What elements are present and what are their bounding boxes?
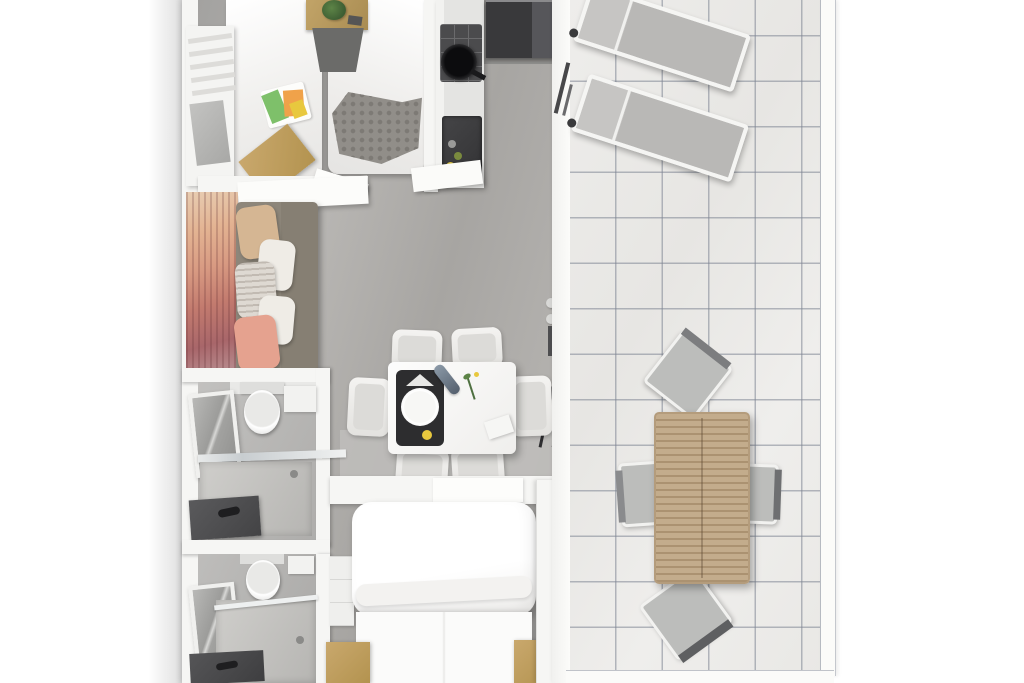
dining-chair-left	[347, 377, 392, 437]
wardrobe-shelves	[186, 26, 234, 186]
napkin-triangle	[406, 374, 434, 386]
bathroom-bottom-shelf	[288, 556, 314, 574]
black-placemat	[396, 370, 444, 446]
toilet-bottom-bowl	[246, 560, 280, 600]
frying-pan	[441, 44, 477, 80]
shelf-slat-2	[189, 46, 233, 57]
bathroom-top-shelf	[284, 386, 316, 412]
master-bed-duvet	[356, 612, 532, 683]
mural-streaks	[186, 192, 238, 372]
lounger-fold-line	[612, 90, 631, 140]
plant-pot	[322, 0, 346, 20]
shower-drain-bottom	[296, 636, 304, 644]
fridge	[486, 0, 560, 58]
yellow-chip	[422, 430, 432, 440]
master-side-shelf-unit	[330, 556, 354, 626]
lounger-fold-line	[614, 0, 633, 50]
terrace-right-frame	[820, 0, 836, 676]
chair-seat	[515, 381, 547, 430]
floorplan-render	[0, 0, 1024, 683]
toilet-top-bowl	[244, 390, 280, 434]
bottle-gray	[448, 140, 456, 148]
shelf-slat-1	[188, 33, 232, 44]
outdoor-table	[654, 412, 750, 584]
table-center-gap	[701, 418, 703, 578]
flower-sprig-bud	[474, 372, 479, 377]
shelf-slat-4	[191, 72, 235, 83]
bottle-green	[454, 152, 462, 160]
unit-left-shadow	[148, 0, 182, 683]
chair-seat	[353, 383, 385, 431]
sunset-mural-wall	[186, 192, 238, 372]
shelf-slat-5	[192, 85, 236, 96]
pillow-pink	[233, 314, 281, 373]
chair-seat	[457, 333, 496, 363]
white-plate	[401, 388, 439, 426]
shelf-slat-3	[190, 59, 234, 70]
bathroom-divider-wall	[182, 540, 330, 554]
bathroom-top-wall-upper	[182, 368, 330, 382]
master-bench-left	[326, 642, 370, 683]
chair-seat	[398, 335, 437, 364]
dark-vanity-top-bath	[189, 496, 262, 541]
wardrobe-panel	[189, 100, 230, 166]
nightstand-item	[347, 15, 362, 26]
shower-drain-top	[290, 470, 298, 478]
headboard-white-rug	[433, 478, 523, 502]
terrace-bottom-frame	[566, 670, 834, 683]
interior-right-wall	[552, 0, 572, 683]
